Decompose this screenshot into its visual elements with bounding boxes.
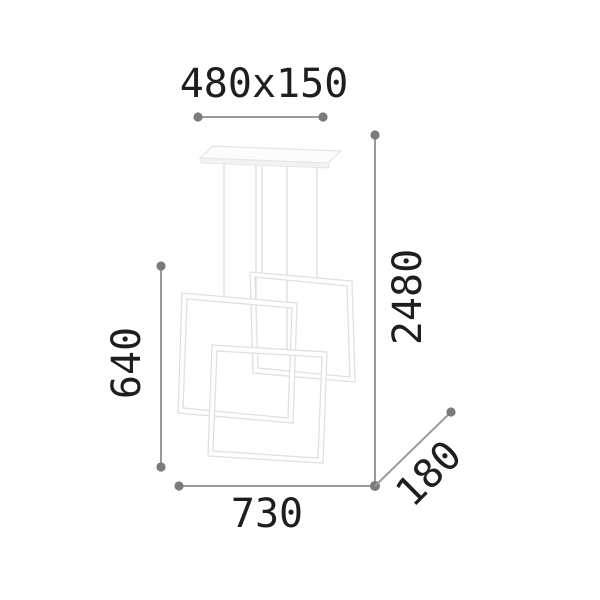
dimension-dot bbox=[193, 112, 202, 121]
dimension-dot bbox=[156, 261, 165, 270]
ceiling-canopy bbox=[200, 146, 341, 168]
dimension-label-frame-side: 640 bbox=[107, 327, 147, 399]
lamp-dimension-diagram: 480x150 2480 640 730 180 bbox=[0, 0, 600, 600]
dimension-dot bbox=[446, 407, 455, 416]
dimension-line-canopy bbox=[193, 112, 327, 121]
dimension-dot bbox=[318, 112, 327, 121]
dimension-label-width: 730 bbox=[231, 494, 303, 534]
dimension-dot bbox=[370, 130, 379, 139]
dimension-label-height: 2480 bbox=[388, 249, 428, 345]
suspension-wires bbox=[224, 160, 317, 350]
dimension-dot bbox=[156, 462, 165, 471]
dimension-line-frame-side bbox=[156, 261, 165, 471]
dimension-dot bbox=[174, 481, 183, 490]
dimension-line-width bbox=[174, 481, 380, 491]
square-frame-middle bbox=[178, 293, 297, 423]
dimension-label-canopy: 480x150 bbox=[180, 64, 349, 104]
square-frame-front bbox=[208, 345, 327, 463]
dimension-line-height bbox=[370, 130, 379, 486]
square-frame-back bbox=[250, 272, 355, 382]
